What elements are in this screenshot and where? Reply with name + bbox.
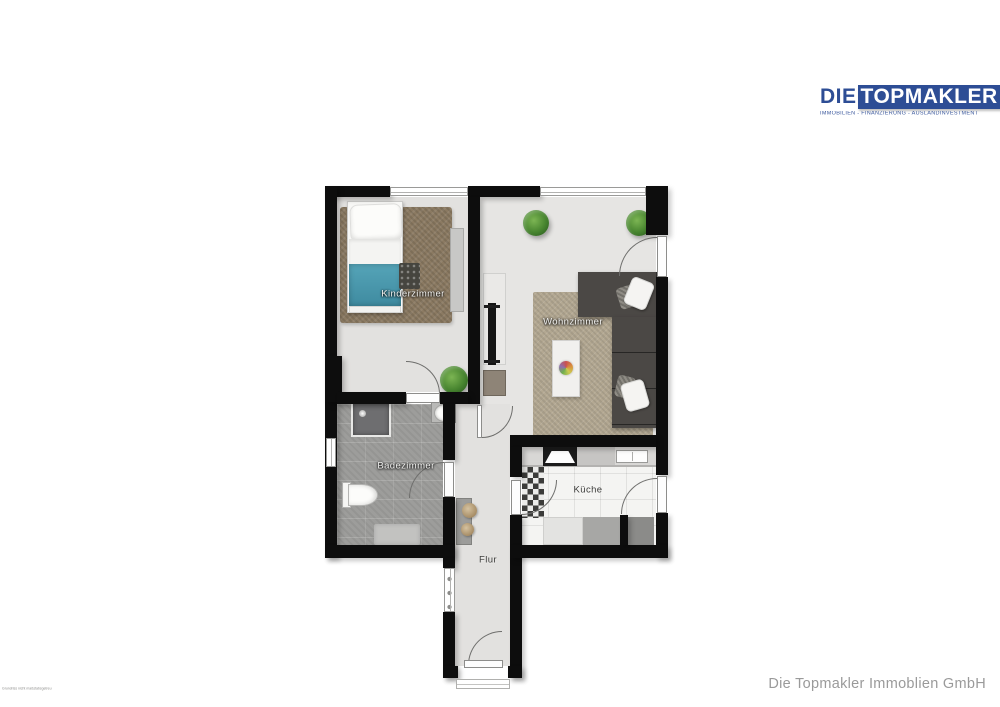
room-label-kinderzimmer: Kinderzimmer xyxy=(381,289,444,300)
kitchen-cabinet xyxy=(628,517,654,545)
small-dark-rug xyxy=(399,263,420,289)
bed-blanket xyxy=(349,264,401,306)
wall-segment xyxy=(620,515,628,545)
hall-door-leaf xyxy=(477,405,482,438)
kitchen-cabinet xyxy=(583,517,620,545)
room-label-wohnzimmer: Wohnzimmer xyxy=(543,317,603,328)
wall-segment xyxy=(443,666,458,678)
table-decor xyxy=(559,361,573,375)
logo-text-die: DIE xyxy=(820,85,858,109)
logo-wordmark: DIE TOPMAKLER xyxy=(820,85,1000,109)
balcony-door-leaf xyxy=(657,236,667,277)
kitchen-cabinet xyxy=(543,517,583,545)
company-logo: DIE TOPMAKLER IMMOBILIEN - FINANZIERUNG … xyxy=(820,85,1000,117)
page: DIE TOPMAKLER IMMOBILIEN - FINANZIERUNG … xyxy=(0,0,1000,707)
wall-segment xyxy=(656,277,668,475)
wall-segment xyxy=(468,197,480,404)
wall-segment xyxy=(510,545,668,558)
bathroom-door-leaf xyxy=(444,462,454,497)
decor-basket xyxy=(461,523,474,536)
shower xyxy=(351,402,391,437)
kitchen-counter-segment xyxy=(577,447,615,465)
window xyxy=(326,438,336,467)
wall-segment xyxy=(325,545,455,558)
window xyxy=(390,187,468,196)
tv-cabinet xyxy=(483,370,506,396)
entry-threshold xyxy=(456,679,510,689)
tv xyxy=(488,303,496,365)
wall-segment xyxy=(508,666,522,678)
wall-segment xyxy=(337,392,406,404)
radiator xyxy=(444,568,455,612)
wall-segment xyxy=(468,186,540,197)
bath-mat xyxy=(374,524,420,545)
room-label-kueche: Küche xyxy=(574,485,603,496)
balcony-door-leaf xyxy=(657,476,667,513)
wardrobe xyxy=(450,228,464,312)
logo-text-topmakler: TOPMAKLER xyxy=(858,85,1000,109)
wall-segment xyxy=(443,404,455,460)
fine-print: Grundriss nicht maßstabsgetreu xyxy=(2,687,52,690)
plant-icon xyxy=(523,210,549,236)
logo-tagline: IMMOBILIEN - FINANZIERUNG - AUSLANDINVES… xyxy=(820,111,986,117)
wall-segment xyxy=(440,392,468,404)
entry-door-leaf xyxy=(464,660,503,668)
kitchen-sink xyxy=(616,450,648,463)
sofa xyxy=(612,317,656,428)
kitchen-door-leaf xyxy=(511,480,521,515)
wall-segment xyxy=(443,558,455,568)
plant-icon xyxy=(440,366,468,394)
decor-basket xyxy=(462,503,477,518)
wall-segment xyxy=(510,435,656,447)
wall-segment xyxy=(510,447,522,477)
window xyxy=(540,187,646,196)
room-label-flur: Flur xyxy=(479,555,497,566)
wall-segment xyxy=(510,515,522,678)
bed-pillow xyxy=(349,203,402,243)
kinderzimmer-door-leaf xyxy=(406,393,440,403)
wall-segment xyxy=(646,186,668,235)
company-name-text: Die Topmakler Immoblien GmbH xyxy=(768,676,986,692)
room-label-badezimmer: Badezimmer xyxy=(377,461,434,472)
bed-footboard xyxy=(349,306,401,313)
